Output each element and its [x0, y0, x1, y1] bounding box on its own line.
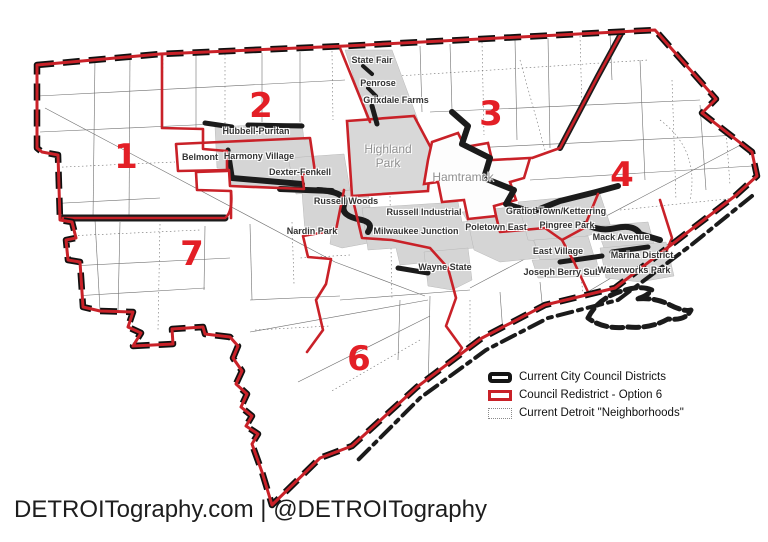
legend-item-current-districts: Current City Council Districts: [488, 368, 684, 386]
red-outline-icon: [488, 390, 512, 401]
legend-label: Current City Council Districts: [519, 371, 666, 383]
legend-item-redistrict-option: Council Redistrict - Option 6: [488, 386, 684, 404]
thick-black-line-icon: [488, 372, 512, 383]
map-canvas: [0, 0, 768, 542]
dotted-outline-icon: [488, 408, 512, 419]
legend-label: Current Detroit "Neighborhoods": [519, 407, 684, 419]
map-legend: Current City Council Districts Council R…: [488, 368, 684, 422]
legend-label: Council Redistrict - Option 6: [519, 389, 662, 401]
detroit-redistricting-map: State FairPenroseGrixdale FarmsHubbell-P…: [0, 0, 768, 542]
belle-isle-outline: [588, 288, 691, 328]
highland-park-boundary: [347, 116, 431, 196]
legend-item-neighborhoods: Current Detroit "Neighborhoods": [488, 404, 684, 422]
footer-credit: DETROITography.com | @DETROITography: [14, 496, 487, 524]
